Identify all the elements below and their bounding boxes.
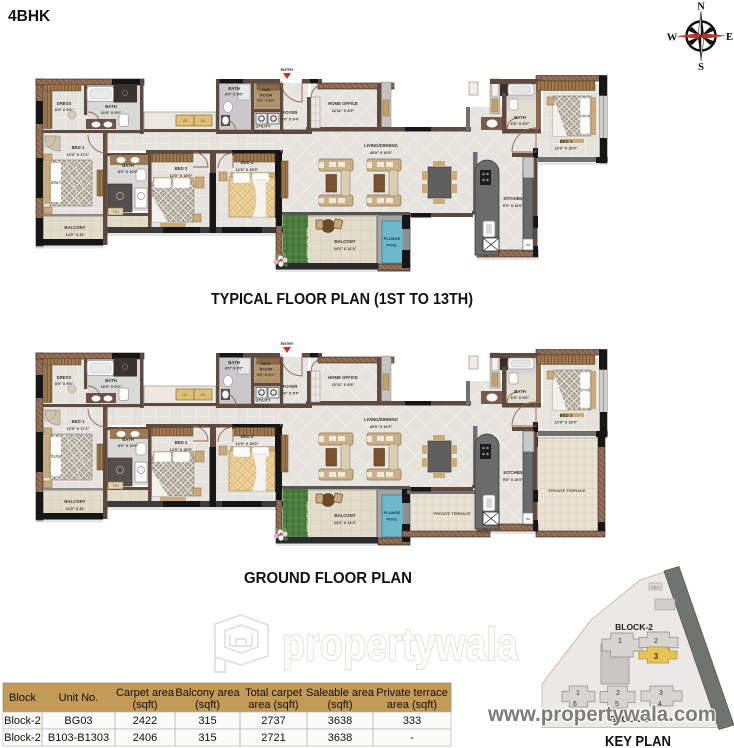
svg-text:UTILITY: UTILITY (255, 124, 270, 129)
svg-text:LANDSCAPE AREA: LANDSCAPE AREA (306, 501, 310, 535)
svg-text:BED 1: BED 1 (72, 145, 85, 150)
svg-text:12'0" X 26': 12'0" X 26' (66, 233, 85, 237)
svg-text:BLOCK-2: BLOCK-2 (615, 622, 653, 632)
svg-text:12'0" X 15'0": 12'0" X 15'0" (236, 442, 259, 446)
svg-text:BED 2: BED 2 (175, 166, 188, 171)
svg-text:HOME OFFICE: HOME OFFICE (328, 375, 358, 380)
svg-text:Balcony area: Balcony area (175, 687, 240, 699)
svg-text:GB-2: GB-2 (651, 586, 659, 590)
svg-text:BALCONY: BALCONY (334, 239, 355, 244)
svg-text:8'0" X 9'0": 8'0" X 9'0" (225, 93, 244, 97)
svg-text:5'0" X 5'0": 5'0" X 5'0" (257, 99, 275, 103)
svg-text:9'0" X 16'0": 9'0" X 16'0" (503, 204, 524, 208)
svg-text:BATH: BATH (105, 378, 117, 383)
svg-text:12'0" X 15'0": 12'0" X 15'0" (555, 147, 578, 151)
svg-text:Private terrace: Private terrace (376, 687, 448, 699)
svg-text:TYPICAL FLOOR PLAN (1ST TO 13T: TYPICAL FLOOR PLAN (1ST TO 13TH) (211, 291, 473, 308)
svg-text:6'6" X 9'4": 6'6" X 9'4" (281, 392, 300, 396)
svg-text:2406: 2406 (133, 732, 157, 744)
svg-text:POOL: POOL (386, 517, 398, 522)
svg-text:10'0" X 9'0": 10'0" X 9'0" (101, 111, 122, 115)
svg-text:MUD: MUD (261, 87, 270, 92)
svg-text:BED 2: BED 2 (175, 440, 188, 445)
svg-text:Carpet area: Carpet area (116, 687, 175, 699)
svg-text:3: 3 (654, 652, 659, 661)
svg-text:Block-2: Block-2 (4, 732, 41, 744)
svg-text:(sqft): (sqft) (327, 699, 352, 711)
svg-text:HOME OFFICE: HOME OFFICE (328, 101, 358, 106)
svg-text:8'0" X 9'0": 8'0" X 9'0" (225, 367, 244, 371)
svg-text:5'0" X 5'0": 5'0" X 5'0" (257, 373, 275, 377)
svg-text:BED 3: BED 3 (560, 413, 573, 418)
svg-text:-: - (410, 732, 414, 744)
svg-text:ENTRY: ENTRY (281, 342, 294, 346)
svg-text:www.propertywala.com: www.propertywala.com (487, 702, 716, 726)
svg-text:12'0" X 15'0": 12'0" X 15'0" (170, 174, 193, 178)
svg-text:N: N (697, 2, 705, 13)
svg-text:E: E (726, 32, 733, 43)
svg-text:8'0" X 10'0": 8'0" X 10'0" (118, 444, 139, 448)
svg-text:9'0" X 16'0": 9'0" X 16'0" (503, 478, 524, 482)
svg-text:BED 1: BED 1 (72, 419, 85, 424)
svg-text:BATH: BATH (514, 115, 526, 120)
svg-text:10'0" X 9'0": 10'0" X 9'0" (101, 385, 122, 389)
svg-text:Total carpet: Total carpet (245, 687, 302, 699)
svg-text:BATH: BATH (122, 163, 134, 168)
svg-text:W: W (667, 33, 678, 44)
svg-text:KITCHEN: KITCHEN (503, 196, 522, 201)
svg-text:6'6" X 9'4": 6'6" X 9'4" (281, 118, 300, 122)
svg-text:KEY PLAN: KEY PLAN (605, 733, 671, 748)
svg-text:Block-2: Block-2 (4, 715, 41, 727)
svg-text:BED 4: BED 4 (241, 160, 254, 165)
svg-text:3638: 3638 (328, 732, 352, 744)
svg-text:8'0" X 9'0": 8'0" X 9'0" (55, 108, 74, 112)
svg-text:24'3" X 12'4": 24'3" X 12'4" (334, 247, 357, 251)
svg-text:dw: dw (526, 517, 531, 521)
svg-text:UTILITY: UTILITY (255, 398, 270, 403)
svg-text:BED 4: BED 4 (241, 434, 254, 439)
svg-text:BED 3: BED 3 (560, 139, 573, 144)
svg-text:5'0" X 3'6": 5'0" X 3'6" (254, 404, 272, 408)
svg-text:700: 700 (112, 210, 118, 214)
svg-text:4BHK: 4BHK (8, 8, 51, 25)
svg-text:ROOM: ROOM (260, 367, 273, 372)
svg-text:Saleable area: Saleable area (306, 687, 375, 699)
svg-text:BATH: BATH (122, 437, 134, 442)
svg-text:12'11" X 8'9": 12'11" X 8'9" (332, 109, 355, 113)
svg-text:GROUND FLOOR PLAN: GROUND FLOOR PLAN (244, 570, 412, 587)
svg-text:BATH: BATH (228, 360, 240, 365)
svg-text:2721: 2721 (261, 732, 285, 744)
svg-text:12'11" X 8'9": 12'11" X 8'9" (332, 383, 355, 387)
svg-text:dw: dw (526, 243, 531, 247)
svg-text:LIVING/DINNING: LIVING/DINNING (364, 143, 398, 148)
svg-text:1: 1 (576, 690, 580, 697)
svg-text:8'0" X 9'0": 8'0" X 9'0" (55, 382, 74, 386)
svg-text:BG03: BG03 (64, 715, 92, 727)
svg-text:OS: OS (183, 119, 188, 123)
svg-text:2737: 2737 (261, 715, 285, 727)
svg-text:MUD: MUD (261, 361, 270, 366)
svg-text:OS: OS (183, 393, 188, 397)
svg-text:S: S (698, 62, 704, 73)
svg-text:6'0" X 9'0": 6'0" X 9'0" (511, 122, 530, 126)
svg-text:PLUNGE: PLUNGE (384, 236, 401, 241)
svg-text:(sqft): (sqft) (195, 699, 220, 711)
svg-text:12'0" X 15'0": 12'0" X 15'0" (555, 421, 578, 425)
svg-text:DRESS: DRESS (57, 375, 72, 380)
svg-text:LIVING/DINNING: LIVING/DINNING (364, 417, 398, 422)
svg-text:PRIVATE TERRACE: PRIVATE TERRACE (433, 511, 471, 516)
svg-text:PLUNGE: PLUNGE (384, 510, 401, 515)
svg-text:KITCHEN: KITCHEN (503, 470, 522, 475)
svg-text:3638: 3638 (328, 715, 352, 727)
svg-text:BALCONY: BALCONY (64, 225, 85, 230)
svg-text:(sqft): (sqft) (132, 699, 157, 711)
svg-text:propertywala: propertywala (282, 618, 518, 670)
svg-text:12'0" X 17'1": 12'0" X 17'1" (67, 153, 90, 157)
svg-text:B103-B1303: B103-B1303 (48, 732, 109, 744)
svg-text:BATH: BATH (105, 104, 117, 109)
svg-text:12'0" X 17'1": 12'0" X 17'1" (67, 427, 90, 431)
svg-text:BALCONY: BALCONY (64, 499, 85, 504)
svg-text:2: 2 (654, 638, 658, 645)
svg-text:12'0" X 15'0": 12'0" X 15'0" (236, 168, 259, 172)
svg-text:POOL: POOL (386, 243, 398, 248)
svg-text:BATH: BATH (514, 389, 526, 394)
svg-text:2: 2 (616, 690, 620, 697)
svg-text:ROOM: ROOM (260, 93, 273, 98)
svg-text:DRESS: DRESS (57, 101, 72, 106)
svg-text:Block: Block (9, 692, 36, 704)
svg-text:6'0" X 9'0": 6'0" X 9'0" (511, 396, 530, 400)
svg-text:BALCONY: BALCONY (334, 513, 355, 518)
svg-text:area (sqft): area (sqft) (248, 699, 298, 711)
svg-text:area (sqft): area (sqft) (387, 699, 437, 711)
svg-text:24'3" X 12'4": 24'3" X 12'4" (334, 521, 357, 525)
svg-text:PRIVATE TERRACE: PRIVATE TERRACE (548, 488, 586, 493)
svg-text:315: 315 (198, 732, 216, 744)
svg-text:OS: OS (201, 119, 206, 123)
svg-text:315: 315 (198, 715, 216, 727)
svg-text:FOYER: FOYER (283, 384, 299, 389)
svg-text:OS: OS (201, 393, 206, 397)
svg-text:ENTRY: ENTRY (281, 68, 294, 72)
svg-text:40'0" X 16'0": 40'0" X 16'0" (370, 425, 393, 429)
svg-text:700: 700 (112, 484, 118, 488)
svg-text:2422: 2422 (133, 715, 157, 727)
svg-text:1: 1 (618, 638, 622, 645)
svg-text:LANDSCAPE AREA: LANDSCAPE AREA (306, 227, 310, 261)
svg-text:BATH: BATH (228, 86, 240, 91)
svg-text:5'0" X 3'6": 5'0" X 3'6" (254, 130, 272, 134)
svg-text:333: 333 (403, 715, 421, 727)
svg-text:8'0" X 10'0": 8'0" X 10'0" (118, 170, 139, 174)
svg-text:FOYER: FOYER (283, 110, 299, 115)
svg-text:12'0" X 15'0": 12'0" X 15'0" (170, 448, 193, 452)
svg-text:3: 3 (659, 690, 663, 697)
svg-text:40'0" X 16'0": 40'0" X 16'0" (370, 151, 393, 155)
svg-text:12'0" X 26': 12'0" X 26' (66, 507, 85, 511)
svg-text:Unit No.: Unit No. (59, 692, 99, 704)
